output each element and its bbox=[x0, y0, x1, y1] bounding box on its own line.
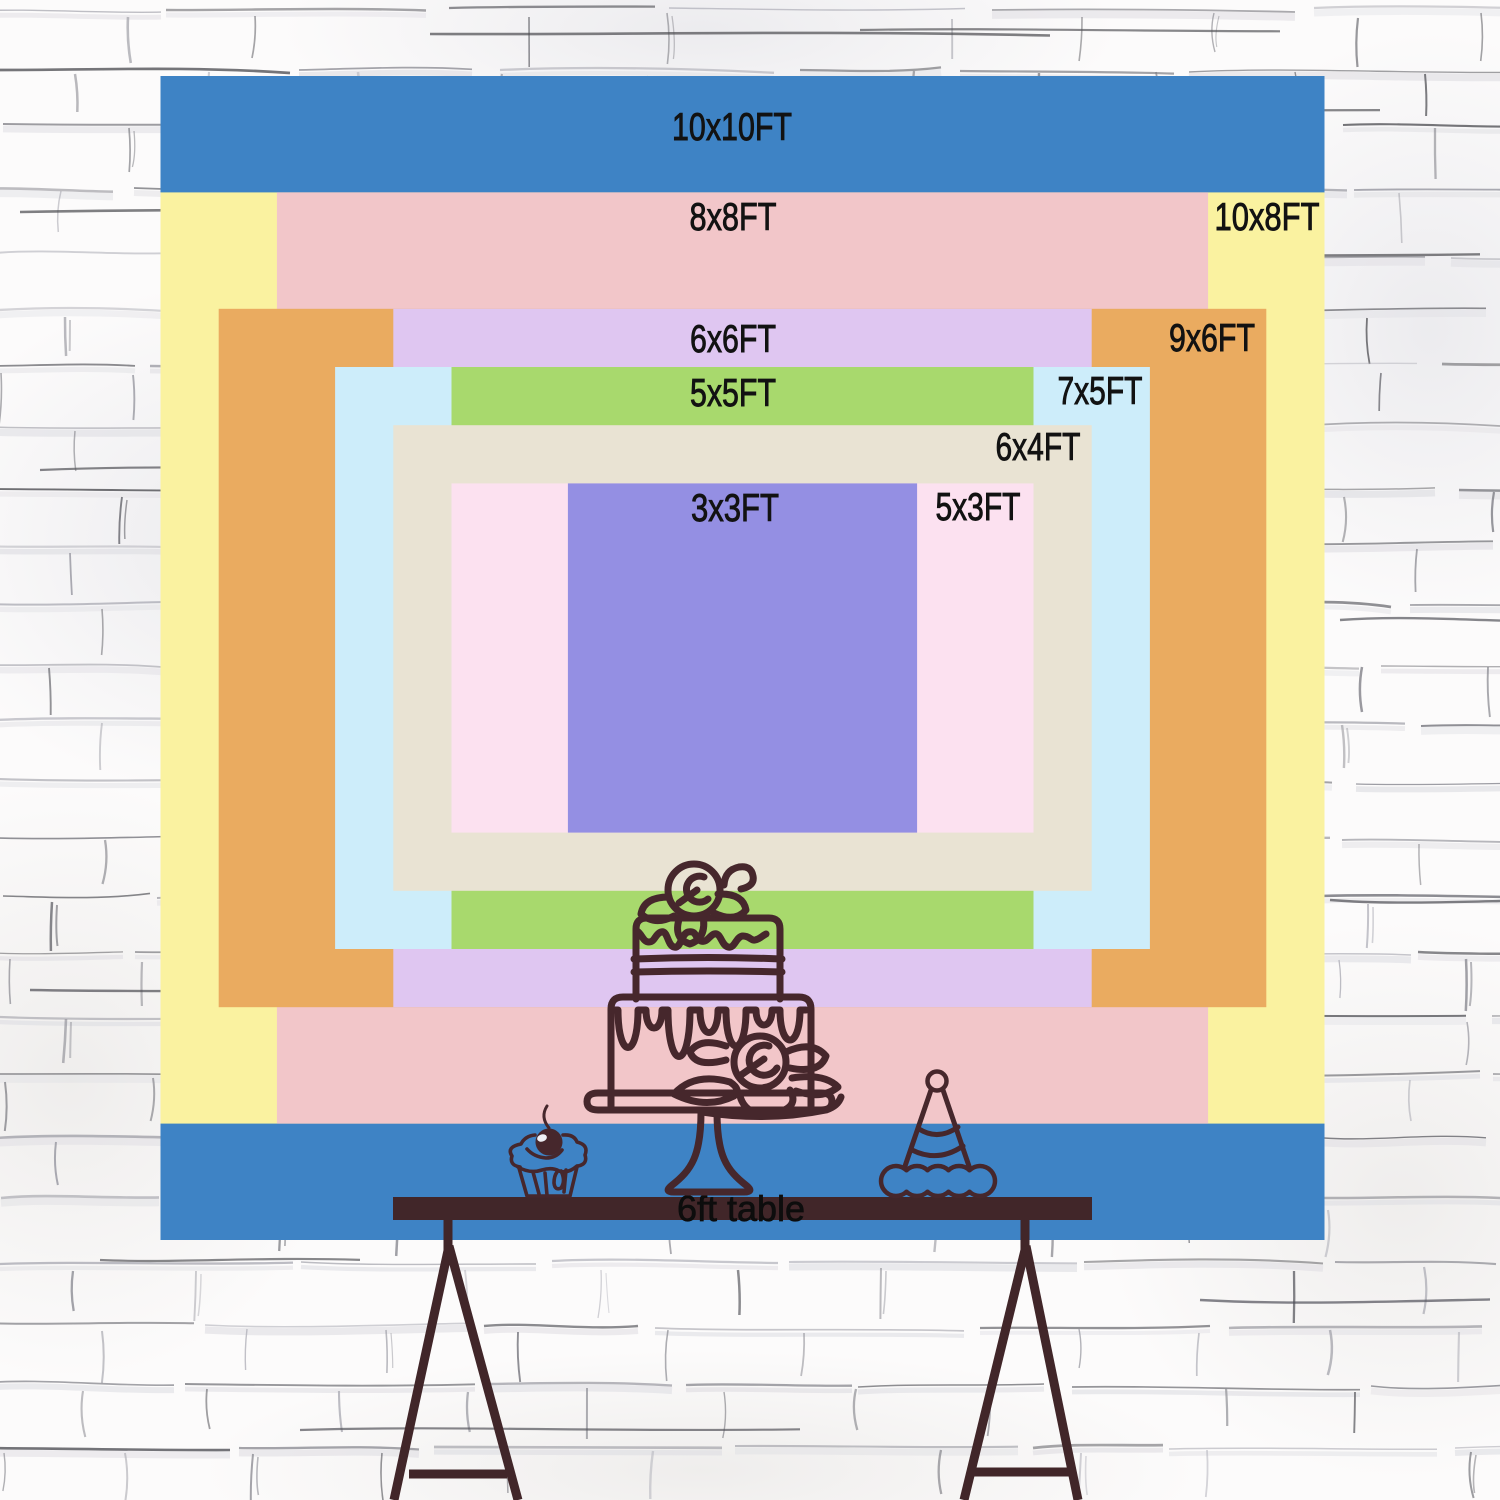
svg-text:7x5FT: 7x5FT bbox=[1058, 370, 1143, 413]
svg-text:6x4FT: 6x4FT bbox=[996, 426, 1081, 469]
svg-text:9x6FT: 9x6FT bbox=[1169, 317, 1255, 360]
svg-text:3x3FT: 3x3FT bbox=[691, 487, 779, 530]
svg-text:5x3FT: 5x3FT bbox=[936, 486, 1021, 529]
svg-text:10x10FT: 10x10FT bbox=[672, 106, 792, 149]
svg-text:5x5FT: 5x5FT bbox=[690, 372, 776, 415]
svg-text:8x8FT: 8x8FT bbox=[690, 196, 777, 239]
svg-text:6x6FT: 6x6FT bbox=[690, 318, 776, 361]
svg-text:10x8FT: 10x8FT bbox=[1215, 196, 1320, 239]
